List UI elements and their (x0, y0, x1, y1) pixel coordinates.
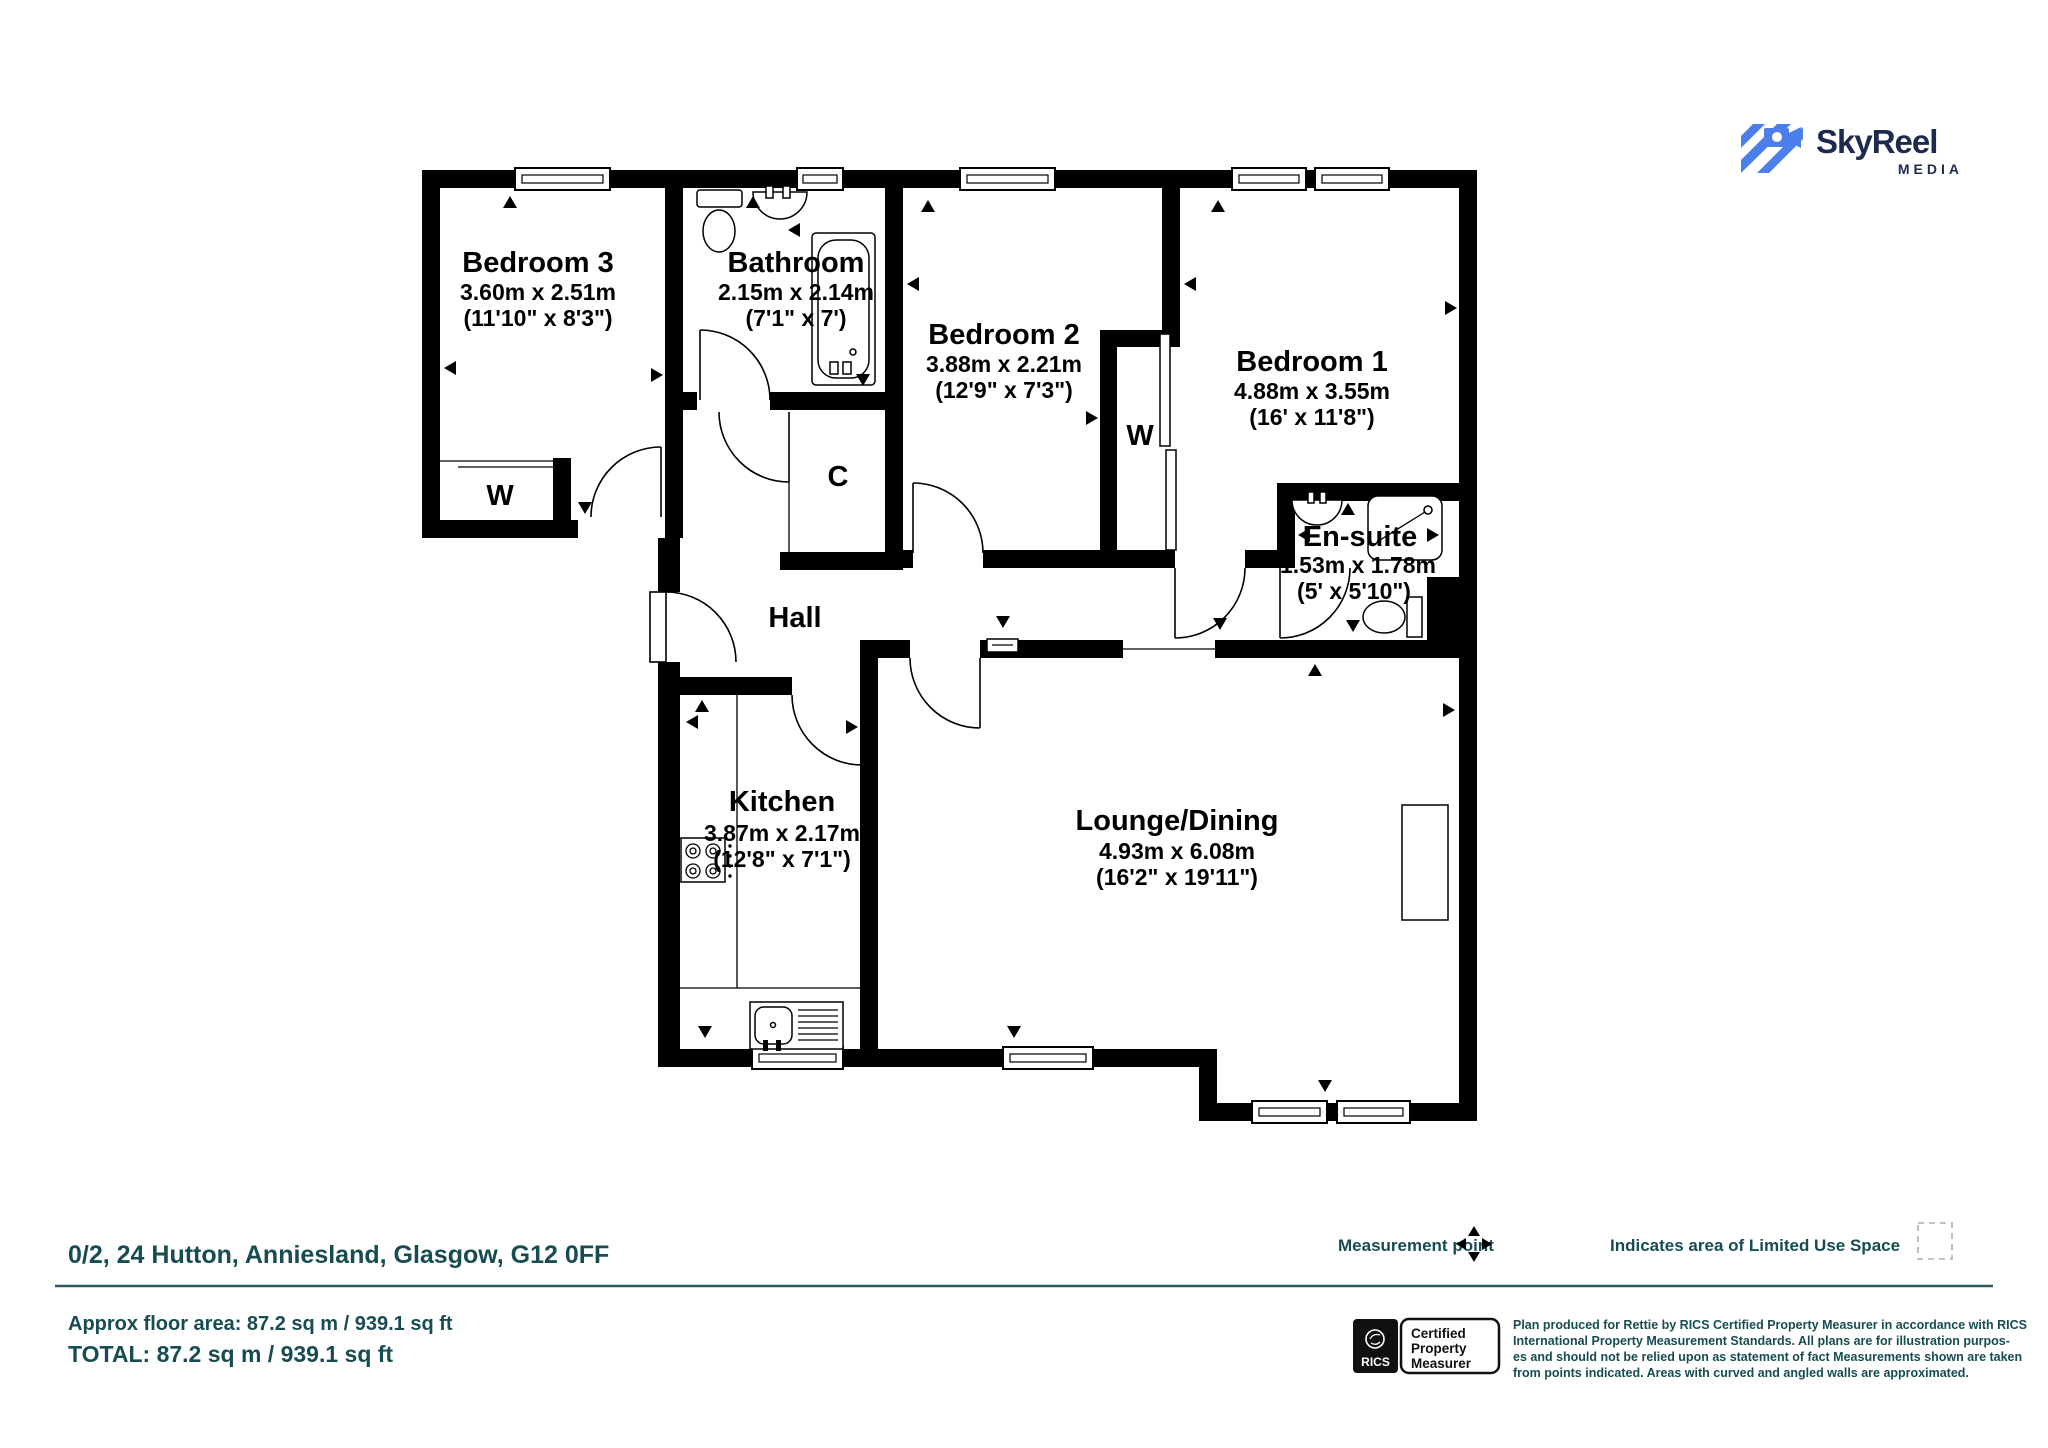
room-metric-bedroom2: 3.88m x 2.21m (926, 351, 1082, 377)
sliding-door (1166, 450, 1176, 550)
room-imperial-ensuite: (5' x 5'10") (1297, 578, 1411, 604)
room-imperial-bedroom2: (12'9" x 7'3") (935, 377, 1073, 403)
window (1003, 1047, 1093, 1069)
rics-badge-line2: Property (1411, 1341, 1467, 1356)
disclaimer-line3: es and should not be relied upon as stat… (1513, 1350, 2022, 1364)
toilet-bowl (1363, 601, 1405, 633)
room-metric-bedroom3: 3.60m x 2.51m (460, 279, 616, 305)
wardrobe-label-mid: W (1126, 420, 1154, 452)
cupboard-door (719, 412, 789, 482)
room-metric-ensuite: 1.53m x 1.78m (1280, 552, 1436, 578)
shower-drain (1424, 506, 1432, 514)
room-imperial-bathroom: (7'1" x 7') (745, 305, 846, 331)
bath-drain (850, 349, 856, 355)
skyreel-camera-icon (1741, 124, 1803, 173)
sliding-door (1160, 334, 1170, 446)
disclaimer-line4: from points indicated. Areas with curved… (1513, 1366, 1969, 1380)
rics-badge: RICS Certified Property Measurer (1353, 1319, 1499, 1373)
tap (763, 1040, 768, 1051)
room-name-bedroom3: Bedroom 3 (462, 247, 613, 279)
window (515, 168, 610, 190)
disclaimer-line1: Plan produced for Rettie by RICS Certifi… (1513, 1318, 2027, 1332)
bedroom1-door (1175, 568, 1245, 638)
room-name-kitchen: Kitchen (729, 786, 835, 818)
room-metric-bathroom: 2.15m x 2.14m (718, 279, 874, 305)
room-imperial-bedroom1: (16' x 11'8") (1249, 404, 1374, 430)
room-imperial-kitchen: (12'8" x 7'1") (713, 846, 851, 872)
window (797, 168, 843, 190)
logo-brand-text: SkyReel (1816, 123, 1937, 160)
disclaimer-line2: International Property Measurement Stand… (1513, 1334, 2010, 1348)
room-name-bedroom1: Bedroom 1 (1236, 346, 1387, 378)
recess-unit (1402, 805, 1448, 920)
room-name-bedroom2: Bedroom 2 (928, 319, 1079, 351)
bedroom3-door (591, 447, 661, 517)
hall-label: Hall (768, 602, 821, 634)
kitchen-fixtures (680, 695, 860, 1051)
room-imperial-lounge: (16'2" x 19'11") (1096, 864, 1258, 890)
toilet-bowl (703, 210, 735, 252)
total-floor-area: TOTAL: 87.2 sq m / 939.1 sq ft (68, 1341, 393, 1367)
room-name-bathroom: Bathroom (728, 247, 865, 279)
property-address: 0/2, 24 Hutton, Anniesland, Glasgow, G12… (68, 1241, 609, 1269)
room-name-ensuite: En-suite (1303, 521, 1417, 553)
tap (766, 186, 773, 198)
tap (1308, 492, 1314, 503)
tap (783, 186, 790, 198)
window (1337, 1101, 1410, 1123)
rics-badge-line3: Measurer (1411, 1356, 1472, 1371)
room-imperial-bedroom3: (11'10" x 8'3") (463, 305, 612, 331)
window (1252, 1101, 1327, 1123)
toilet-cistern (697, 190, 742, 207)
cupboard-label: C (828, 461, 849, 493)
window (1315, 168, 1389, 190)
window (1232, 168, 1306, 190)
rics-badge-line1: Certified (1411, 1326, 1466, 1341)
legend-limited-use: Indicates area of Limited Use Space (1610, 1236, 1900, 1255)
wardrobe-label-bed3: W (486, 480, 514, 512)
room-metric-bedroom1: 4.88m x 3.55m (1234, 378, 1390, 404)
limited-use-icon (1918, 1223, 1952, 1259)
room-metric-kitchen: 3.87m x 2.17m (704, 820, 860, 846)
floorplan-page: Bedroom 3 3.60m x 2.51m (11'10" x 8'3") … (0, 0, 2048, 1448)
bathroom-door (700, 330, 770, 400)
approx-floor-area: Approx floor area: 87.2 sq m / 939.1 sq … (68, 1313, 453, 1335)
bedroom2-door (913, 483, 983, 553)
basin (753, 192, 807, 219)
bath-tap (830, 362, 838, 374)
bath-tap (843, 362, 851, 374)
rics-name: RICS (1361, 1355, 1390, 1369)
window (960, 168, 1055, 190)
disclaimer: Plan produced for Rettie by RICS Certifi… (1513, 1318, 2027, 1380)
room-metric-lounge: 4.93m x 6.08m (1099, 838, 1255, 864)
lounge-door (910, 658, 980, 728)
room-name-lounge: Lounge/Dining (1076, 805, 1279, 837)
tap (1320, 492, 1326, 503)
entrance-door (650, 592, 736, 662)
room-labels: Bedroom 3 3.60m x 2.51m (11'10" x 8'3") … (460, 247, 1436, 890)
tap (776, 1040, 781, 1051)
sink-drain (771, 1023, 776, 1028)
footer: 0/2, 24 Hutton, Anniesland, Glasgow, G12… (55, 1223, 2027, 1380)
skyreel-logo: SkyReel MEDIA (1741, 123, 1963, 177)
camera-lens (1772, 132, 1782, 142)
floorplan-svg: Bedroom 3 3.60m x 2.51m (11'10" x 8'3") … (0, 0, 2048, 1448)
logo-tagline-text: MEDIA (1898, 161, 1963, 177)
